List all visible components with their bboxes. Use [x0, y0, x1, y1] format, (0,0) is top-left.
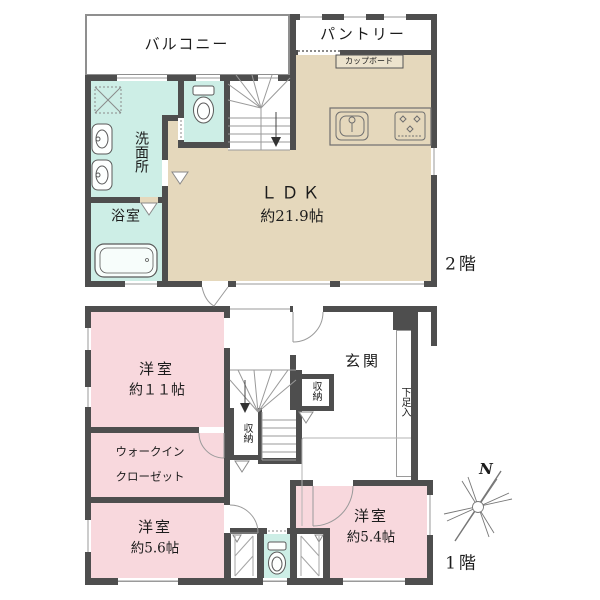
storage-a-label: 収納 [241, 423, 251, 443]
window [343, 578, 405, 585]
stairs-icon-1f [230, 370, 296, 460]
wall [178, 142, 230, 148]
door-gap [202, 281, 228, 287]
window [431, 148, 437, 175]
window [263, 578, 287, 585]
ldk-label: ＬＤＫ [261, 185, 324, 204]
window [344, 14, 366, 20]
door-gap [178, 118, 184, 140]
window [384, 14, 406, 20]
washroom-area-ext [162, 81, 178, 115]
wall [158, 197, 168, 203]
storage-b-label: 収納 [310, 381, 320, 401]
bedroom1-size-label: 約１１帖 [129, 383, 185, 398]
sliding-door [298, 50, 340, 55]
door-gap [267, 528, 287, 534]
wall [85, 75, 91, 287]
front-door-arc [293, 312, 323, 342]
balcony-label: バルコニー [145, 36, 230, 53]
window [427, 495, 433, 535]
washroom-area [91, 81, 162, 197]
closet-right-area [297, 534, 323, 578]
window [236, 281, 330, 287]
pantry-label: パントリー [320, 26, 406, 43]
wall [290, 480, 296, 585]
wall [258, 458, 302, 464]
window [85, 387, 91, 407]
wall [85, 427, 199, 433]
wall [290, 355, 296, 410]
door-gap [313, 480, 353, 486]
toilet-1f-area [264, 534, 290, 578]
wall [302, 406, 334, 411]
wall [290, 14, 296, 150]
window [300, 14, 322, 20]
wic-area [91, 433, 224, 497]
wic-label-line2: クローゼット [116, 471, 185, 484]
cupboard-label: カップボード [345, 58, 393, 67]
bath-label: 浴室 [111, 209, 141, 224]
toilet-2f-area [184, 81, 224, 142]
bedroom2-label: 洋室 [138, 519, 172, 536]
bedroom3-size-label: 約5.4帖 [347, 531, 395, 546]
stairs-2f-area [228, 75, 290, 150]
shoe-box-label: 下足入 [399, 387, 409, 417]
compass-north-label: N [479, 461, 493, 478]
window [258, 75, 278, 81]
door-gap [224, 505, 230, 533]
window [117, 75, 167, 81]
bedroom3-label: 洋室 [354, 508, 388, 525]
floor-plan: バルコニー パントリー カップボード 洗面所 浴室 ＬＤＫ 約21.9帖 2階 … [0, 0, 600, 600]
bedroom1-label: 洋室 [139, 361, 175, 378]
door-gap [162, 160, 168, 186]
wall [230, 408, 234, 460]
balcony-door-swing [202, 287, 228, 306]
ldk-size-label: 約21.9帖 [260, 208, 323, 225]
wall [431, 306, 437, 346]
wall [85, 497, 230, 503]
wall [411, 322, 418, 480]
compass-icon [444, 471, 512, 541]
wall [290, 480, 433, 486]
door-gap [224, 318, 230, 348]
window [85, 328, 91, 350]
wall [85, 197, 140, 203]
window [85, 520, 91, 552]
window [118, 578, 178, 585]
closet-left-area [231, 534, 257, 578]
window [340, 281, 424, 287]
window [125, 281, 157, 287]
front-door-gap [293, 306, 323, 312]
washroom-label: 洗面所 [134, 131, 148, 173]
wall [296, 370, 302, 464]
floor1-label: 1階 [445, 555, 479, 574]
floor2-label: 2階 [445, 256, 479, 275]
entrance-label: 玄関 [345, 353, 381, 370]
wall [224, 75, 230, 148]
window [196, 75, 220, 81]
window [230, 306, 290, 312]
bedroom2-size-label: 約5.6帖 [131, 542, 179, 557]
wic-label-line1: ウォークイン [116, 446, 185, 459]
